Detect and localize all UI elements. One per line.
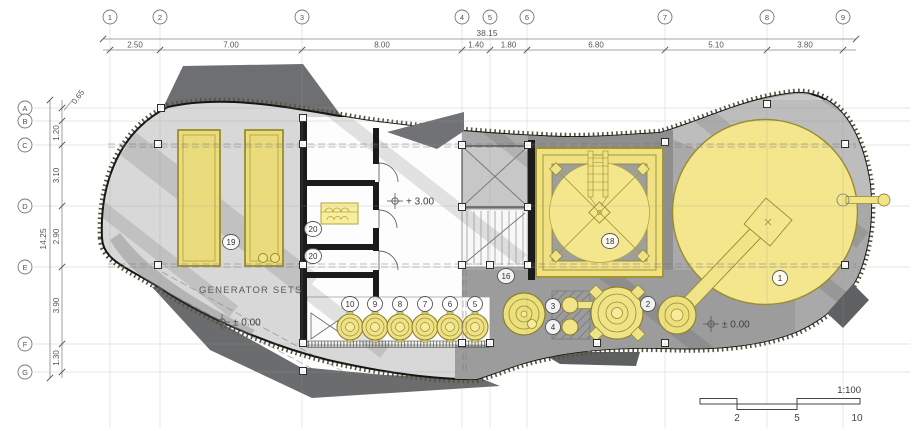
grid-column-label: 3 xyxy=(300,13,304,22)
segment-dim-label: 1.40 xyxy=(468,41,484,50)
column-node xyxy=(300,368,307,375)
pump-hub xyxy=(446,323,455,332)
column-node xyxy=(155,262,162,269)
segment-dim-label: 7.00 xyxy=(223,41,239,50)
square-tank-18 xyxy=(536,148,663,277)
callout-label-4: 4 xyxy=(551,323,556,332)
pump-hub xyxy=(471,323,480,332)
elevation-text: ± 0.00 xyxy=(722,320,750,331)
callout-label-6: 6 xyxy=(448,300,453,309)
scale-segment xyxy=(797,399,860,405)
grid-row-label: B xyxy=(22,117,27,126)
scale-tick-label: 5 xyxy=(794,413,800,424)
grid-column-label: 8 xyxy=(765,13,769,22)
column-node xyxy=(300,141,307,148)
segment-dim-label: 8.00 xyxy=(374,41,390,50)
generator-dot xyxy=(259,254,268,263)
grid-column-label: 7 xyxy=(663,13,667,22)
column-node xyxy=(300,262,307,269)
segment-dim-label: 5.10 xyxy=(708,41,724,50)
grid-row-label: G xyxy=(22,368,28,377)
generator-sets-label: GENERATOR SETS xyxy=(199,285,303,296)
segment-dim-label-left: 1.30 xyxy=(52,350,61,366)
overall-dim-label: 38.15 xyxy=(476,28,498,38)
scale-tick-label: 2 xyxy=(734,413,740,424)
callout-label-3: 3 xyxy=(551,302,556,311)
callout-label-10: 10 xyxy=(346,300,355,309)
pump-16 xyxy=(503,293,545,335)
grid-column-label: 1 xyxy=(108,13,112,22)
pump-hub xyxy=(421,323,430,332)
callout-label-9: 9 xyxy=(373,300,378,309)
callout-label-20: 20 xyxy=(309,252,318,261)
grid-column-label: 5 xyxy=(488,13,492,22)
mixer-2 xyxy=(589,285,645,341)
callout-label-1: 1 xyxy=(778,274,783,283)
floor-plan-canvas: 12345678938.152.507.008.001.401.806.805.… xyxy=(0,0,920,431)
segment-dim-label-left: 3.90 xyxy=(52,297,61,313)
floor-plan-drawing: 12345678938.152.507.008.001.401.806.805.… xyxy=(0,0,920,431)
callout-label-16: 16 xyxy=(502,272,511,281)
grid-column-label: 4 xyxy=(460,13,464,22)
dimensions-top: 12345678938.152.507.008.001.401.806.805.… xyxy=(100,10,859,53)
segment-dim-label-left: 1.20 xyxy=(52,125,61,141)
scale-segment xyxy=(700,399,737,405)
scale-tick-label: 10 xyxy=(851,413,863,424)
grid-column-label: 9 xyxy=(841,13,845,22)
grid-row-label: C xyxy=(22,141,28,150)
segment-dim-label-left: 2.90 xyxy=(52,228,61,244)
scale-bar: 1:1002510 xyxy=(700,385,863,424)
column-node xyxy=(155,141,162,148)
scale-segment xyxy=(737,404,797,410)
outlet-cap xyxy=(878,194,890,206)
segment-dim-label: 3.80 xyxy=(797,41,813,50)
segment-dim-label: 2.50 xyxy=(127,41,143,50)
grid-column-label: 6 xyxy=(525,13,529,22)
pump-hub xyxy=(346,323,355,332)
generator-dot xyxy=(271,254,280,263)
pump-hub xyxy=(396,323,405,332)
elevation-text: + 3.00 xyxy=(406,197,435,208)
column-node xyxy=(525,262,532,269)
column-node xyxy=(300,340,307,347)
segment-dim-label-left: 3.10 xyxy=(52,167,61,183)
segment-dim-label-left: 0.65 xyxy=(70,88,87,106)
callout-label-2: 2 xyxy=(646,300,651,309)
callout-label-19: 19 xyxy=(227,238,236,247)
column-node xyxy=(594,340,601,347)
callout-label-7: 7 xyxy=(423,300,428,309)
callout-label-8: 8 xyxy=(398,300,403,309)
grid-column-label: 2 xyxy=(158,13,162,22)
tank-3 xyxy=(562,297,578,313)
scale-ratio-label: 1:100 xyxy=(837,385,861,396)
column-node xyxy=(842,141,849,148)
column-node xyxy=(525,204,532,211)
column-node xyxy=(300,115,307,122)
pump-hub xyxy=(371,323,380,332)
callout-label-18: 18 xyxy=(606,237,615,246)
grid-row-label: E xyxy=(22,263,27,272)
column-node xyxy=(842,262,849,269)
segment-dim-label: 1.80 xyxy=(501,41,517,50)
outlet-pipe xyxy=(846,197,880,204)
elevation-text: ± 0.00 xyxy=(233,318,261,329)
grid-row-label: A xyxy=(22,104,27,113)
segment-dim-label: 6.80 xyxy=(588,41,604,50)
dimensions-left: ABCDEFG14.250.651.203.102.903.901.30 xyxy=(18,88,87,382)
callout-label-20: 20 xyxy=(309,225,318,234)
grid-row-label: F xyxy=(23,340,28,349)
tank-4 xyxy=(562,319,578,335)
callout-label-5: 5 xyxy=(473,300,478,309)
grid-row-label: D xyxy=(22,202,28,211)
overall-dim-label-left: 14.25 xyxy=(38,228,48,250)
